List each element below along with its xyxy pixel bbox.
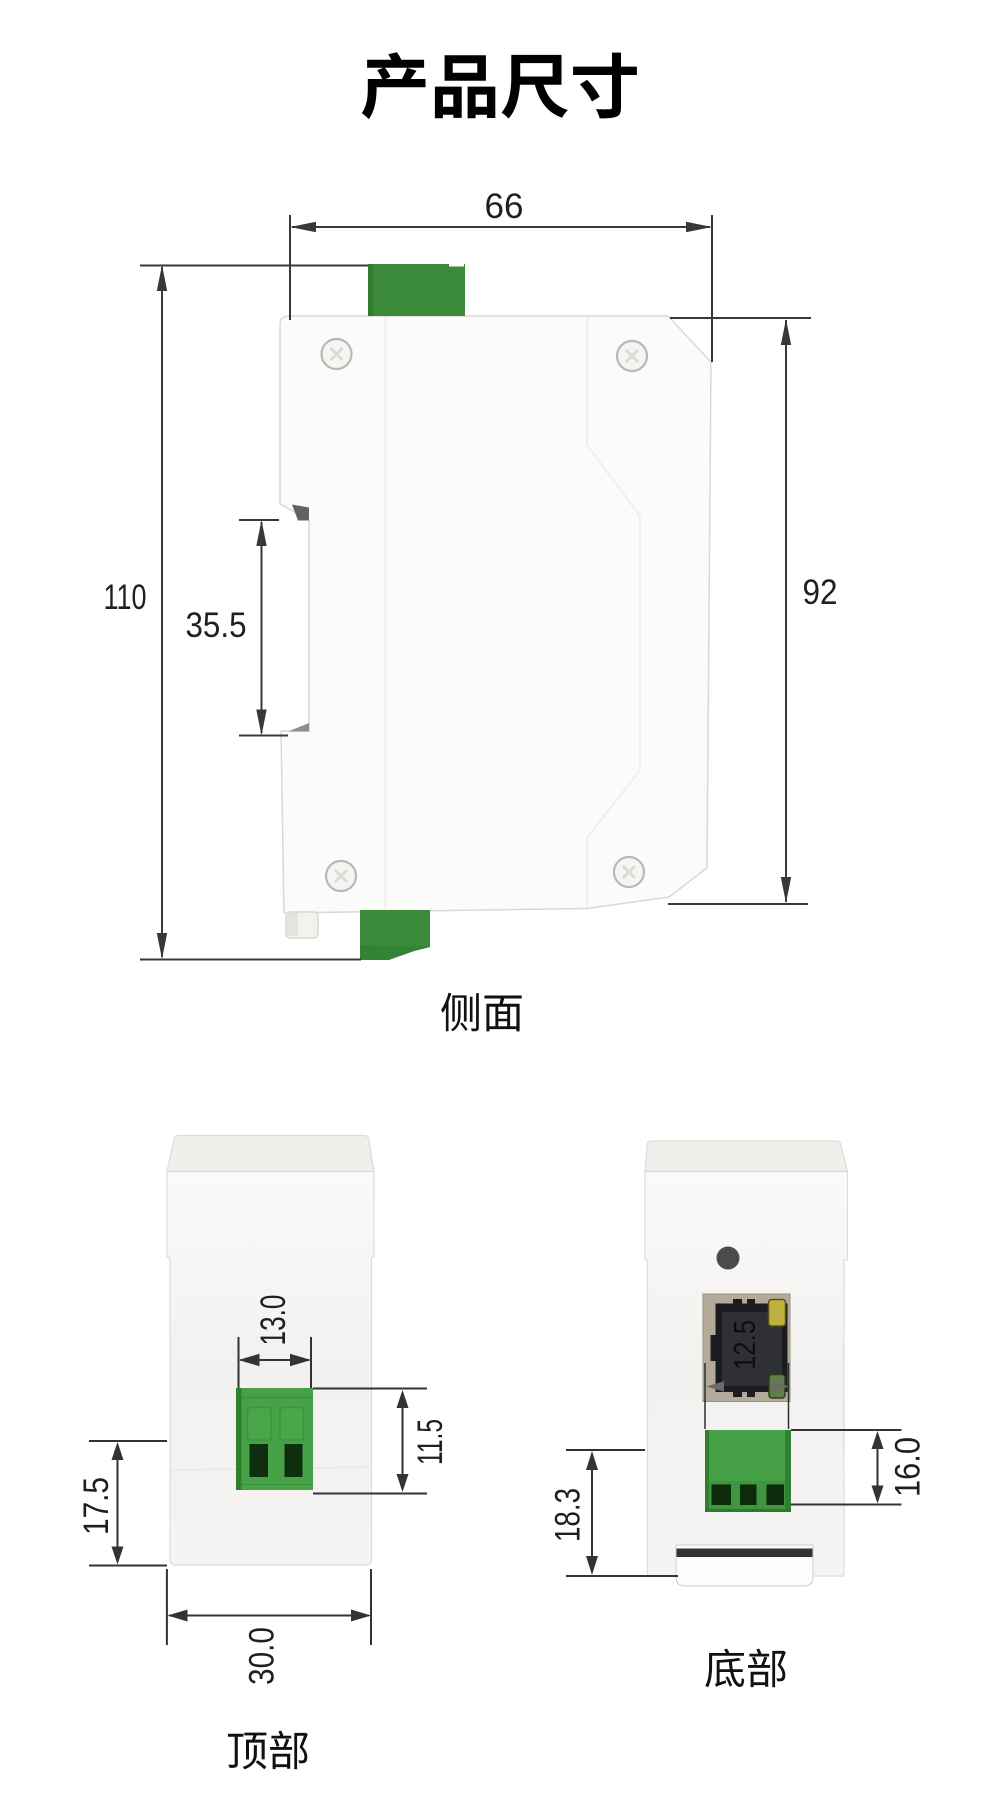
svg-text:30.0: 30.0 — [243, 1627, 282, 1685]
svg-text:12.5: 12.5 — [727, 1320, 762, 1370]
svg-text:66: 66 — [485, 187, 524, 226]
svg-text:35.5: 35.5 — [186, 606, 247, 645]
svg-text:17.5: 17.5 — [77, 1477, 116, 1535]
svg-text:11.5: 11.5 — [411, 1419, 450, 1465]
svg-text:110: 110 — [104, 578, 147, 617]
svg-text:13.0: 13.0 — [254, 1295, 293, 1346]
svg-text:92: 92 — [803, 573, 838, 612]
svg-text:16.0: 16.0 — [889, 1437, 928, 1497]
svg-text:18.3: 18.3 — [549, 1488, 588, 1542]
